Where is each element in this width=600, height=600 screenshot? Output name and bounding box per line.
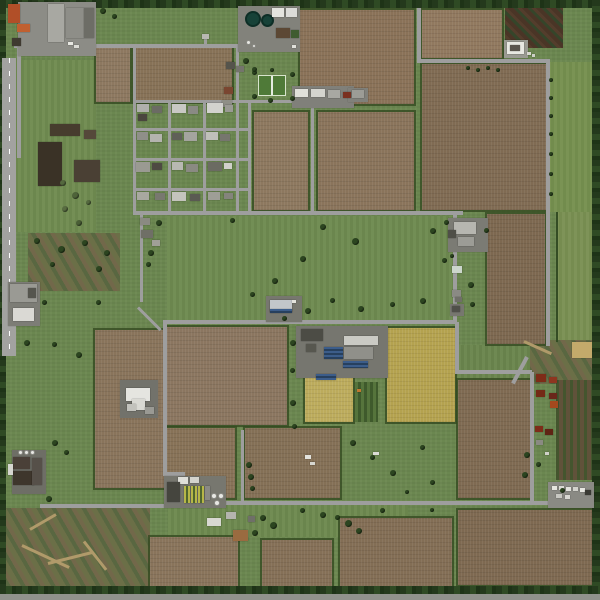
shed: [455, 297, 462, 302]
tree: [496, 68, 500, 72]
road: [140, 214, 143, 302]
farm-building: [190, 477, 199, 483]
bush: [60, 180, 66, 186]
solar-panel: [316, 374, 336, 380]
orchard: [556, 380, 594, 480]
biogas-tank: [245, 11, 261, 27]
tree: [24, 340, 30, 346]
tree: [42, 300, 47, 305]
tree: [430, 228, 436, 234]
tree: [470, 302, 475, 307]
tree: [292, 424, 297, 429]
barn: [74, 160, 100, 182]
tank: [8, 464, 13, 475]
tree: [34, 238, 40, 244]
shed: [536, 440, 543, 445]
solar-panel: [270, 309, 292, 313]
building: [226, 512, 236, 519]
road: [133, 188, 251, 191]
tree: [52, 440, 58, 446]
road: [168, 100, 171, 213]
biogas-building: [291, 30, 299, 38]
farm-building: [306, 344, 316, 352]
road: [203, 100, 206, 213]
field: [134, 48, 232, 102]
village-house: [137, 192, 149, 200]
village-house: [155, 193, 165, 200]
tree: [250, 486, 255, 491]
vehicle: [68, 42, 73, 45]
tree: [252, 530, 258, 536]
tree: [290, 96, 295, 101]
dealer-vehicle: [556, 494, 562, 498]
barn: [167, 482, 180, 502]
village-house: [206, 132, 218, 140]
house: [550, 401, 558, 408]
tree: [560, 488, 565, 493]
building: [28, 288, 36, 298]
fence-object: [305, 455, 311, 459]
village-house: [141, 230, 153, 238]
tree: [230, 218, 235, 223]
building: [226, 62, 235, 69]
village-house: [172, 104, 186, 113]
village-house: [224, 193, 233, 199]
solar-panel: [343, 361, 368, 368]
biogas-building: [272, 8, 284, 17]
tree: [270, 522, 277, 529]
vehicle: [527, 52, 531, 55]
field: [262, 540, 332, 587]
tree: [96, 266, 102, 272]
dealer-vehicle: [566, 487, 571, 491]
tree: [484, 228, 489, 233]
tree: [64, 450, 69, 455]
tree: [76, 352, 82, 358]
road: [417, 8, 421, 63]
shed: [343, 92, 351, 98]
road: [133, 100, 251, 103]
tree: [356, 528, 362, 534]
solar-panel: [324, 347, 343, 359]
biogas-building: [286, 8, 297, 17]
road: [455, 322, 459, 374]
ripe-field: [305, 378, 353, 422]
tree: [52, 342, 57, 347]
farm-building: [344, 347, 373, 359]
tree: [549, 78, 553, 82]
dealer-vehicle: [573, 487, 578, 491]
road: [241, 430, 244, 502]
sand-pit: [572, 342, 594, 358]
shed: [328, 90, 340, 98]
field: [96, 48, 130, 102]
tree: [290, 368, 295, 373]
field: [167, 327, 287, 425]
tree: [104, 250, 110, 256]
tree: [549, 192, 553, 196]
meadow: [167, 216, 457, 320]
house: [224, 87, 233, 94]
road: [417, 59, 550, 63]
silo: [30, 450, 35, 455]
tree: [260, 515, 266, 521]
house: [549, 393, 557, 399]
tree: [272, 278, 278, 284]
tree: [243, 58, 249, 64]
bale-stack: [198, 486, 204, 503]
road: [133, 158, 251, 161]
farm-building: [12, 38, 21, 46]
roadside-shed: [510, 45, 520, 51]
village-house: [172, 162, 183, 170]
tree: [282, 316, 287, 321]
tree: [476, 68, 480, 72]
dealer-building: [585, 490, 591, 495]
white-building: [127, 404, 136, 411]
tree: [430, 480, 435, 485]
shed: [352, 90, 364, 98]
tree: [522, 472, 528, 478]
shed: [452, 306, 460, 312]
scrub-area: [5, 508, 150, 594]
house: [535, 426, 543, 432]
shed: [145, 407, 154, 414]
roadside-building: [202, 34, 209, 39]
village-house: [207, 103, 223, 113]
silo: [252, 44, 256, 48]
shed: [295, 89, 308, 97]
tree: [390, 470, 396, 476]
pasture-fence: [556, 212, 558, 342]
tree: [524, 452, 530, 458]
village-house: [208, 192, 220, 200]
road: [133, 128, 251, 131]
tree: [536, 462, 541, 467]
scrub-area: [28, 233, 120, 291]
fence-object: [310, 462, 315, 465]
village-house: [152, 106, 162, 113]
silo: [246, 40, 251, 45]
tree: [250, 292, 255, 297]
village-house: [137, 104, 149, 112]
tree: [300, 508, 305, 513]
tree: [46, 496, 52, 502]
tree: [270, 68, 274, 72]
tree: [335, 515, 340, 520]
bush: [62, 206, 68, 212]
tree: [549, 114, 553, 118]
vehicle: [292, 45, 296, 48]
dealer-vehicle: [552, 486, 557, 490]
silo: [218, 493, 224, 499]
tree: [420, 298, 426, 304]
road: [204, 38, 207, 46]
vehicle: [292, 300, 296, 303]
tree: [549, 172, 553, 176]
tree: [112, 14, 117, 19]
tree: [320, 512, 326, 518]
tree: [252, 67, 257, 72]
tree: [300, 256, 306, 262]
bush: [72, 192, 79, 199]
tree: [50, 262, 55, 267]
tree: [420, 445, 425, 450]
tree: [549, 152, 553, 156]
road: [137, 306, 162, 331]
barn: [13, 471, 34, 485]
village-house: [137, 132, 148, 140]
bush: [76, 220, 82, 226]
road: [168, 501, 592, 505]
barn: [38, 142, 62, 186]
farm-building: [48, 4, 64, 42]
tree: [390, 302, 395, 307]
village-house: [224, 163, 232, 169]
tree: [290, 340, 296, 346]
field: [245, 428, 340, 498]
building: [233, 530, 248, 541]
tree: [468, 282, 474, 288]
village-house: [172, 133, 182, 140]
village-house: [188, 106, 198, 114]
field: [487, 214, 545, 344]
field: [422, 64, 546, 210]
tree: [486, 66, 490, 70]
tree: [358, 306, 364, 312]
tree: [370, 455, 375, 460]
tree: [430, 508, 434, 512]
tree: [290, 72, 295, 77]
house: [536, 374, 546, 382]
farmstead-building: [454, 222, 476, 234]
village-house: [225, 105, 233, 112]
tree: [82, 240, 88, 246]
village-house: [208, 162, 222, 171]
farm-building: [301, 329, 323, 341]
farmstead-building: [458, 237, 474, 246]
field: [422, 10, 502, 58]
field: [458, 380, 530, 498]
tree: [320, 224, 326, 230]
bale-stack: [191, 486, 197, 503]
village-house: [220, 134, 230, 141]
greenhouse: [452, 266, 462, 273]
tree-border-bottom: [0, 586, 600, 594]
tree: [268, 98, 273, 103]
tree: [450, 254, 454, 258]
farm-building: [66, 8, 84, 38]
tree: [96, 300, 101, 305]
house: [545, 429, 553, 435]
shed: [452, 290, 461, 297]
village-house: [152, 163, 162, 170]
tree: [248, 474, 254, 480]
village-house: [140, 218, 150, 225]
vehicle: [74, 45, 79, 48]
road: [163, 320, 457, 324]
road: [17, 46, 21, 158]
barn: [84, 130, 96, 139]
tree: [100, 8, 106, 14]
pasture: [556, 212, 592, 345]
tree: [345, 520, 352, 527]
field: [318, 112, 414, 210]
tree: [305, 308, 311, 314]
silo: [214, 500, 220, 506]
ripe-field: [387, 328, 455, 422]
vehicle: [532, 54, 535, 57]
road: [133, 211, 463, 215]
shed: [311, 89, 325, 97]
road: [530, 372, 534, 502]
garden-rows: [355, 382, 378, 422]
house: [549, 377, 557, 383]
silo: [24, 450, 29, 455]
bush: [86, 200, 91, 205]
tree: [156, 220, 162, 226]
tree: [148, 250, 154, 256]
farmstead-building: [448, 230, 456, 238]
road: [457, 370, 532, 374]
village-house: [186, 164, 198, 172]
farm-building: [205, 486, 210, 500]
map-canvas: [0, 0, 600, 600]
farm-building: [84, 8, 94, 38]
tree: [442, 258, 447, 263]
tree: [405, 490, 409, 494]
tree: [549, 132, 553, 136]
tree: [146, 262, 151, 267]
tree: [246, 462, 252, 468]
village-house: [136, 162, 150, 172]
farm-building: [17, 24, 30, 32]
tree: [352, 238, 359, 245]
silo: [18, 450, 23, 455]
vehicle: [545, 452, 549, 455]
farm-building: [8, 4, 20, 23]
soccer-pitch: [258, 75, 286, 96]
farm-building: [344, 336, 378, 345]
village-house: [172, 192, 186, 201]
road: [248, 100, 251, 213]
village-house: [150, 134, 162, 142]
field: [150, 537, 238, 587]
border-road: [0, 594, 600, 600]
building: [207, 518, 221, 526]
village-house: [184, 132, 197, 141]
house: [536, 390, 545, 397]
tree: [290, 400, 296, 406]
pasture: [548, 62, 592, 212]
barn: [13, 457, 30, 469]
biogas-building: [276, 28, 290, 38]
road: [311, 100, 314, 214]
tree: [444, 220, 449, 225]
building: [236, 66, 244, 72]
building: [248, 516, 255, 522]
field: [458, 510, 592, 585]
village-house: [152, 240, 160, 246]
road: [40, 504, 168, 508]
building: [13, 308, 34, 321]
field: [254, 112, 308, 210]
silo: [211, 493, 217, 499]
tree: [549, 96, 553, 100]
tree: [330, 298, 335, 303]
tree: [380, 508, 385, 513]
village-house: [138, 114, 147, 121]
village-house: [190, 194, 200, 201]
tree: [350, 440, 356, 446]
tree: [466, 66, 470, 70]
tree: [58, 246, 65, 253]
dealer-vehicle: [565, 495, 570, 499]
road: [546, 62, 550, 346]
barn: [50, 124, 80, 136]
bale-stack: [184, 486, 190, 503]
road: [163, 324, 167, 474]
vehicle: [357, 389, 361, 392]
tree: [252, 94, 257, 99]
barn: [32, 458, 42, 485]
